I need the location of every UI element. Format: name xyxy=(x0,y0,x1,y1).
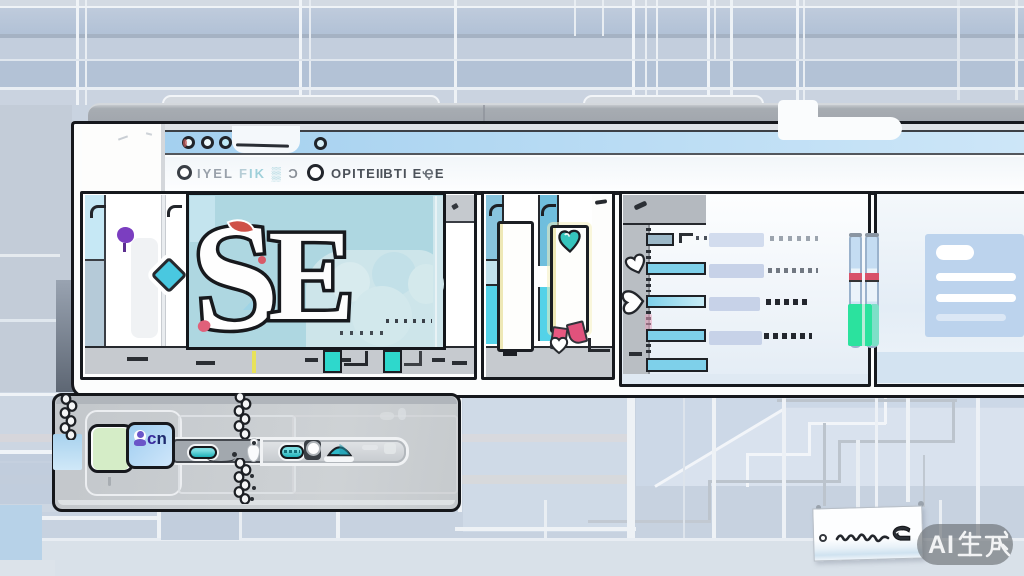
svg-text:E: E xyxy=(268,204,355,348)
